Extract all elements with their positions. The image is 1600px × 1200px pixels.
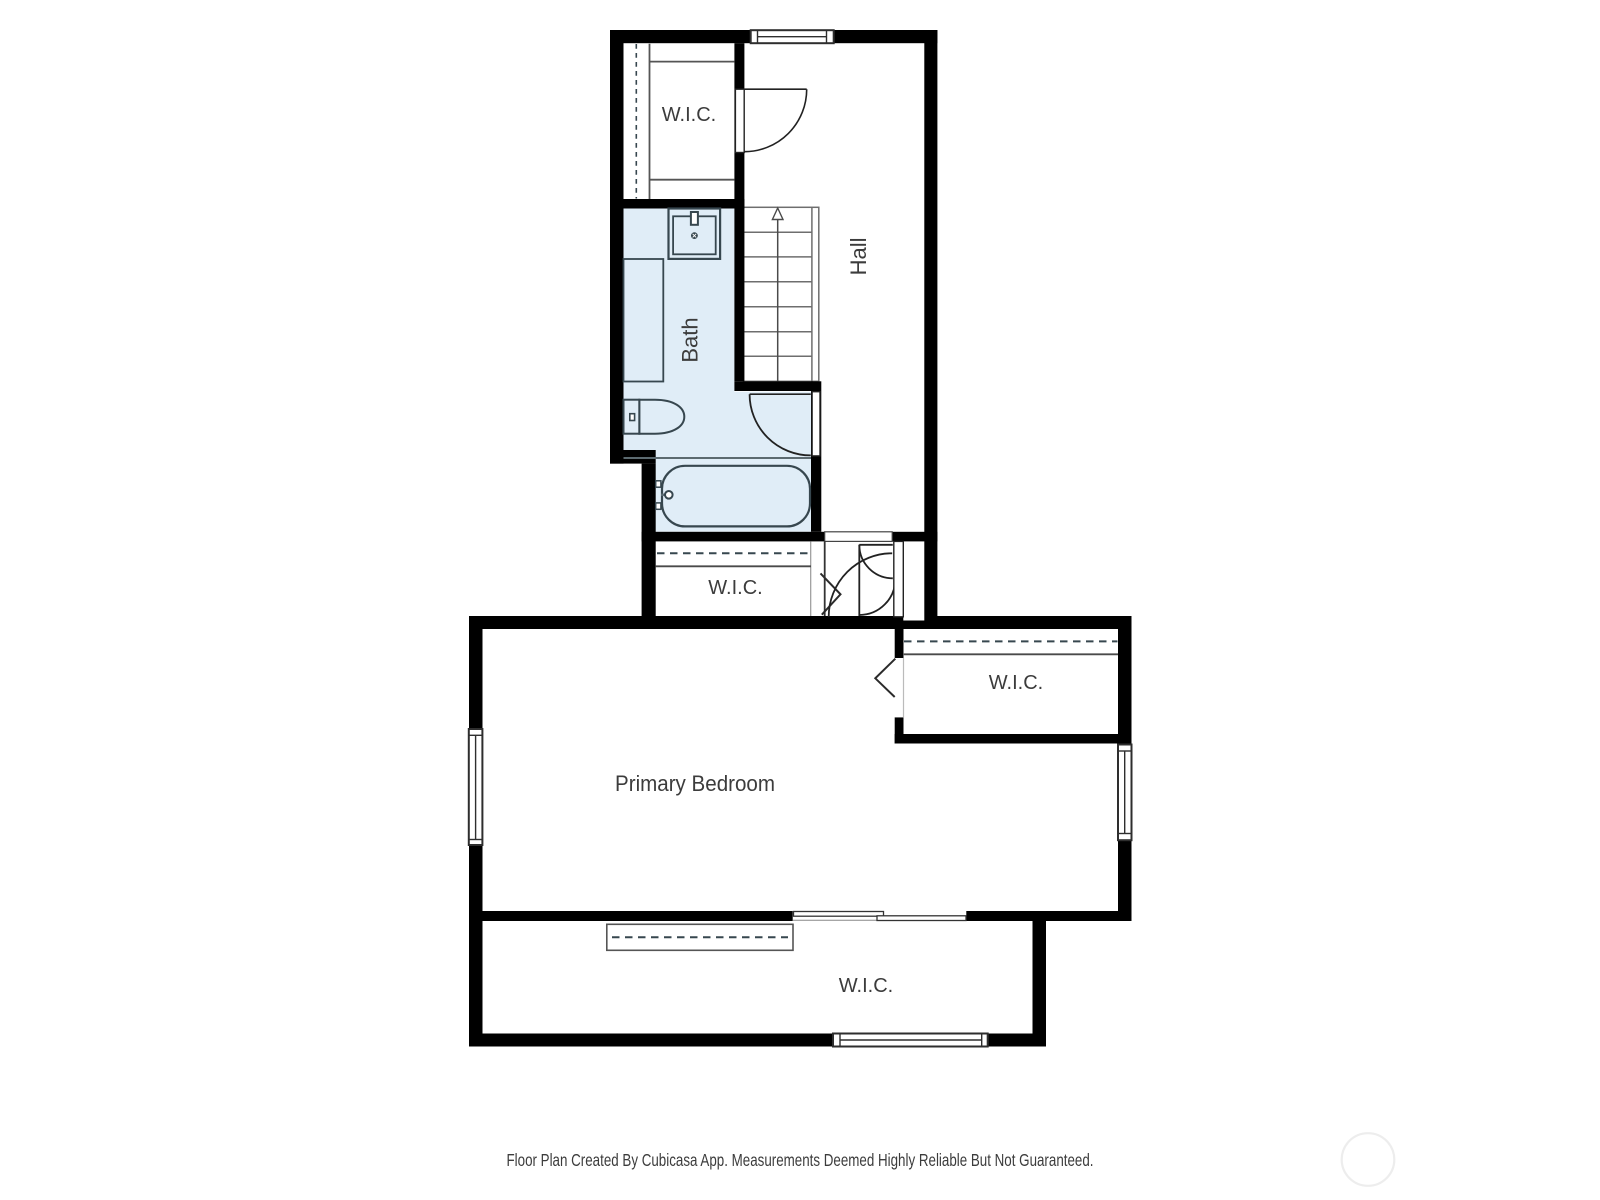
svg-text:W.I.C.: W.I.C.	[662, 104, 716, 126]
svg-text:Hall: Hall	[846, 237, 871, 275]
svg-text:W.I.C.: W.I.C.	[989, 672, 1043, 694]
svg-text:Floor Plan Created By Cubicasa: Floor Plan Created By Cubicasa App. Meas…	[507, 1150, 1094, 1170]
svg-text:Bath: Bath	[677, 317, 702, 362]
svg-text:W.I.C.: W.I.C.	[708, 577, 762, 599]
svg-text:Primary Bedroom: Primary Bedroom	[615, 771, 775, 796]
svg-text:W.I.C.: W.I.C.	[839, 975, 893, 997]
